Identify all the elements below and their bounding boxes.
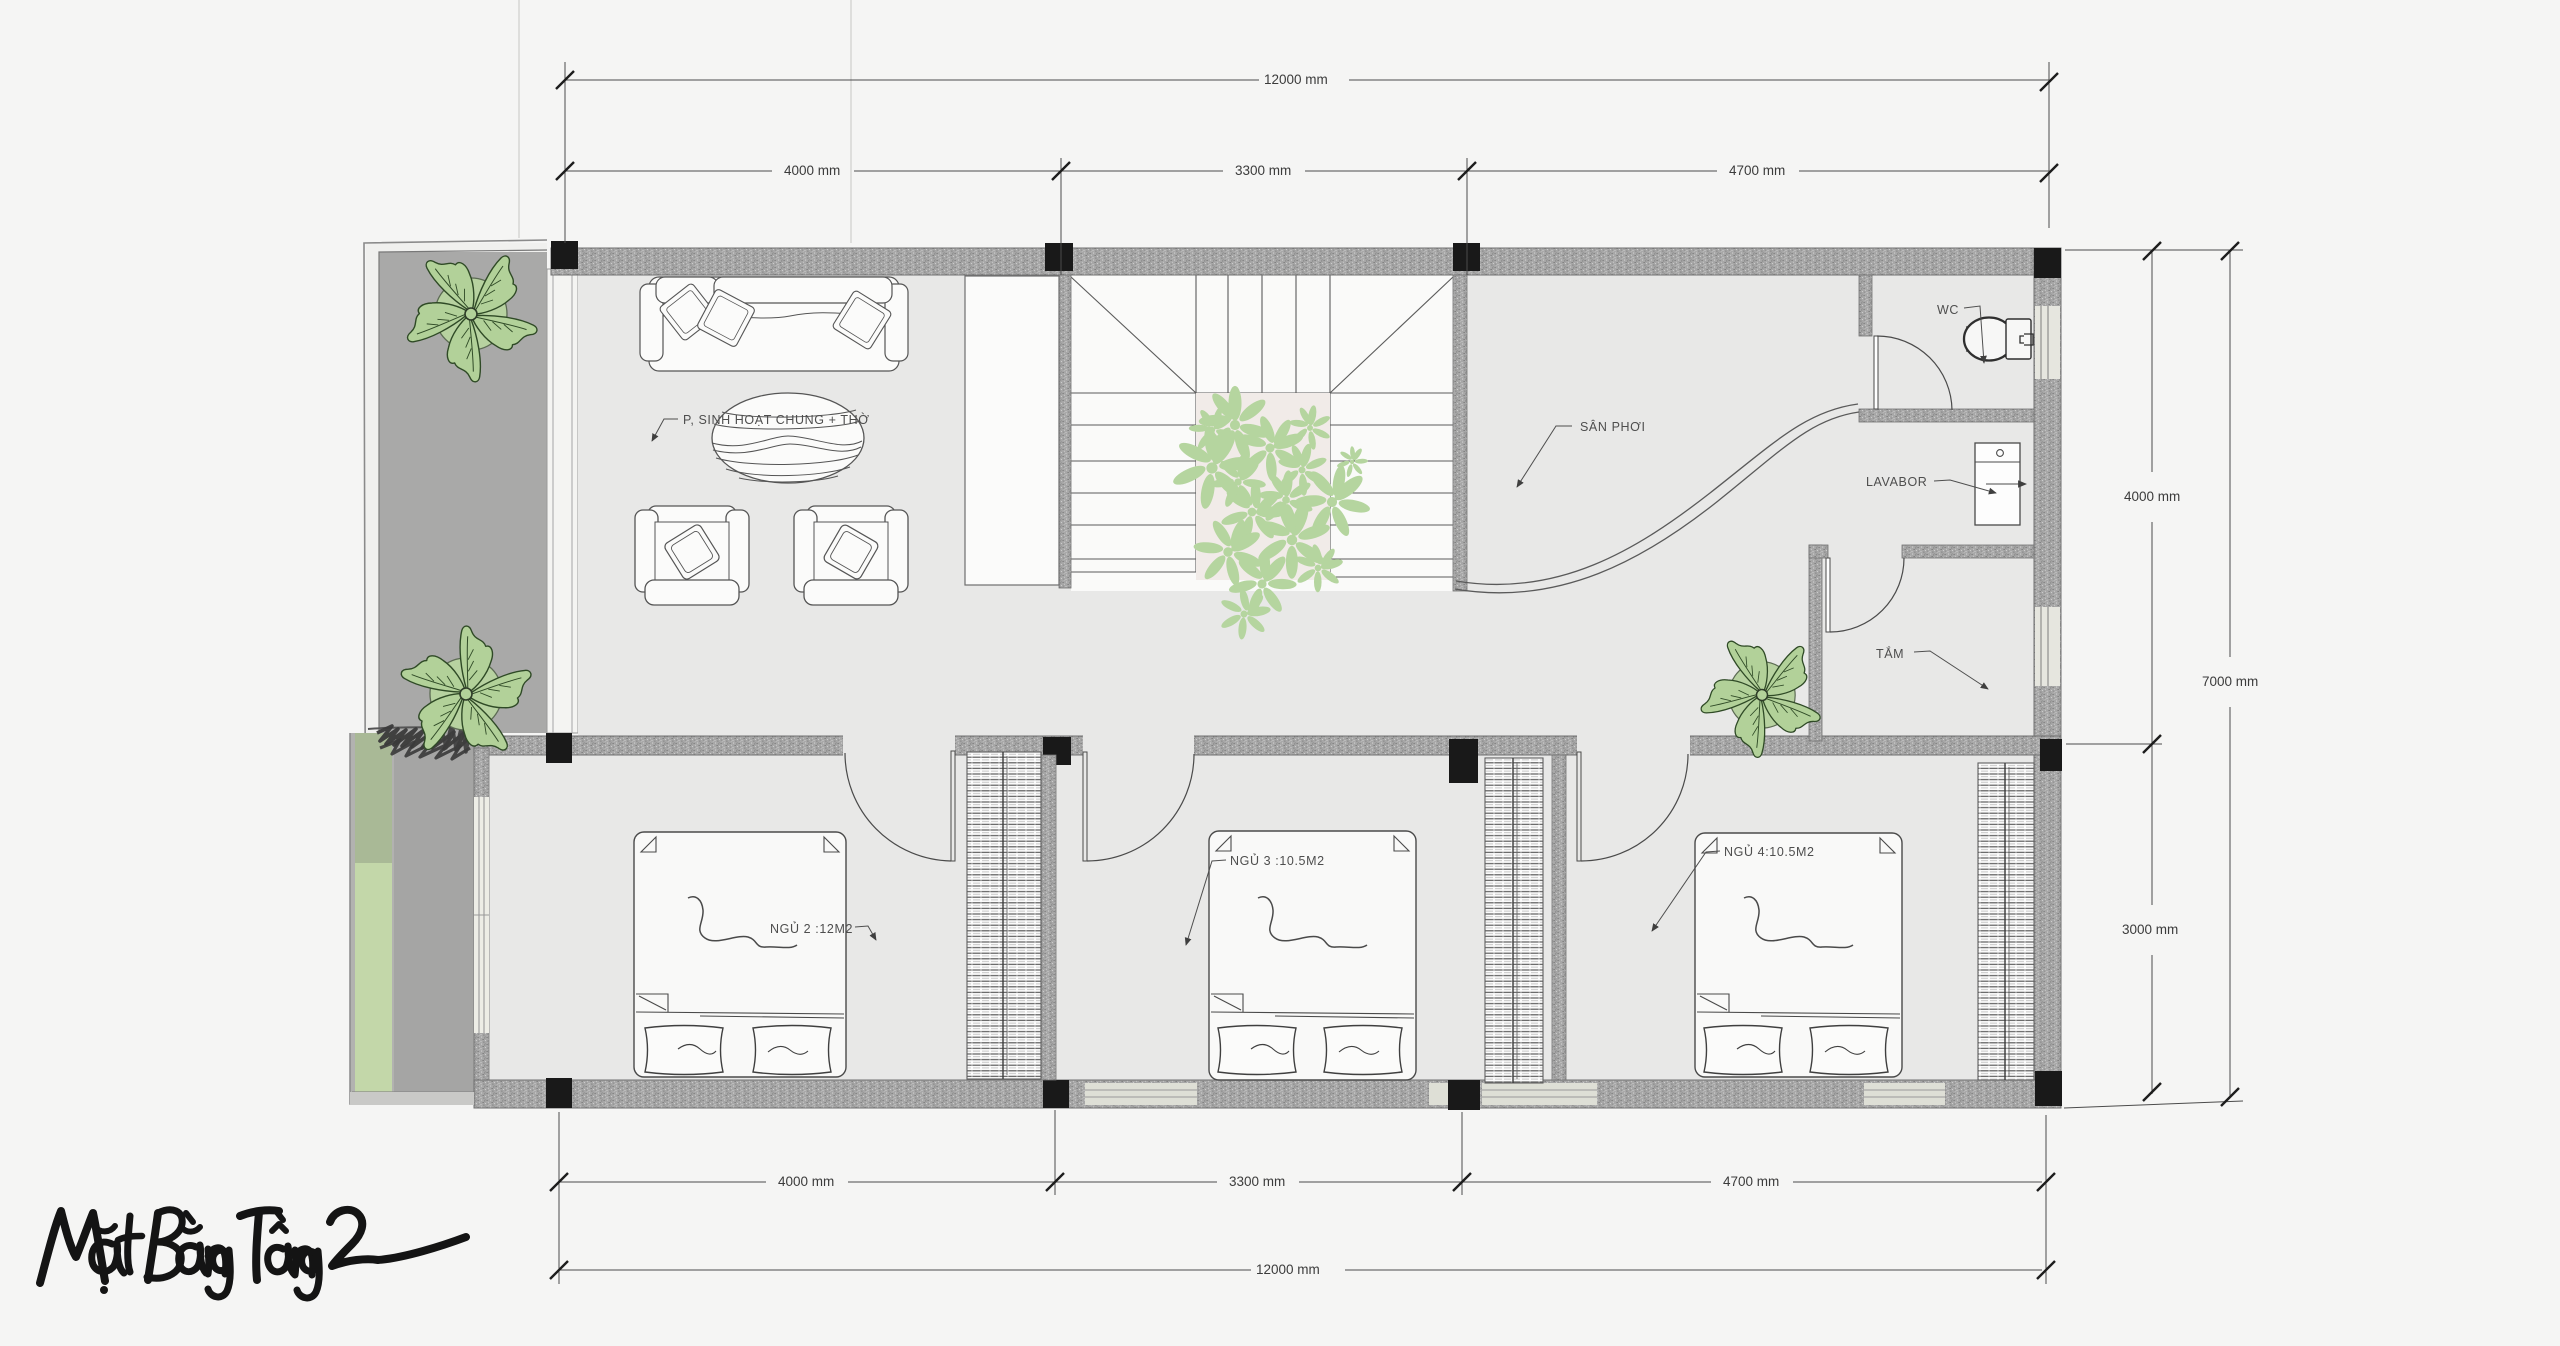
svg-text:4000 mm: 4000 mm bbox=[778, 1174, 834, 1189]
svg-text:NGỦ 2 :12M2: NGỦ 2 :12M2 bbox=[770, 921, 853, 936]
svg-text:3000 mm: 3000 mm bbox=[2122, 922, 2178, 937]
svg-text:4000 mm: 4000 mm bbox=[2124, 489, 2180, 504]
svg-text:12000 mm: 12000 mm bbox=[1256, 1262, 1320, 1277]
svg-text:3300 mm: 3300 mm bbox=[1235, 163, 1291, 178]
svg-text:12000 mm: 12000 mm bbox=[1264, 72, 1328, 87]
svg-text:TẮM: TẮM bbox=[1876, 646, 1904, 661]
svg-text:4700 mm: 4700 mm bbox=[1723, 1174, 1779, 1189]
svg-text:7000 mm: 7000 mm bbox=[2202, 674, 2258, 689]
svg-text:P, SINH HOẠT CHUNG + THỜ: P, SINH HOẠT CHUNG + THỜ bbox=[683, 412, 870, 427]
svg-text:NGỦ 4:10.5M2: NGỦ 4:10.5M2 bbox=[1724, 844, 1815, 859]
svg-text:3300 mm: 3300 mm bbox=[1229, 1174, 1285, 1189]
svg-text:WC: WC bbox=[1937, 303, 1959, 317]
svg-text:SÂN PHƠI: SÂN PHƠI bbox=[1580, 419, 1646, 434]
svg-text:LAVABOR: LAVABOR bbox=[1866, 475, 1927, 489]
svg-text:NGỦ 3 :10.5M2: NGỦ 3 :10.5M2 bbox=[1230, 853, 1325, 868]
svg-text:4700 mm: 4700 mm bbox=[1729, 163, 1785, 178]
svg-text:4000 mm: 4000 mm bbox=[784, 163, 840, 178]
